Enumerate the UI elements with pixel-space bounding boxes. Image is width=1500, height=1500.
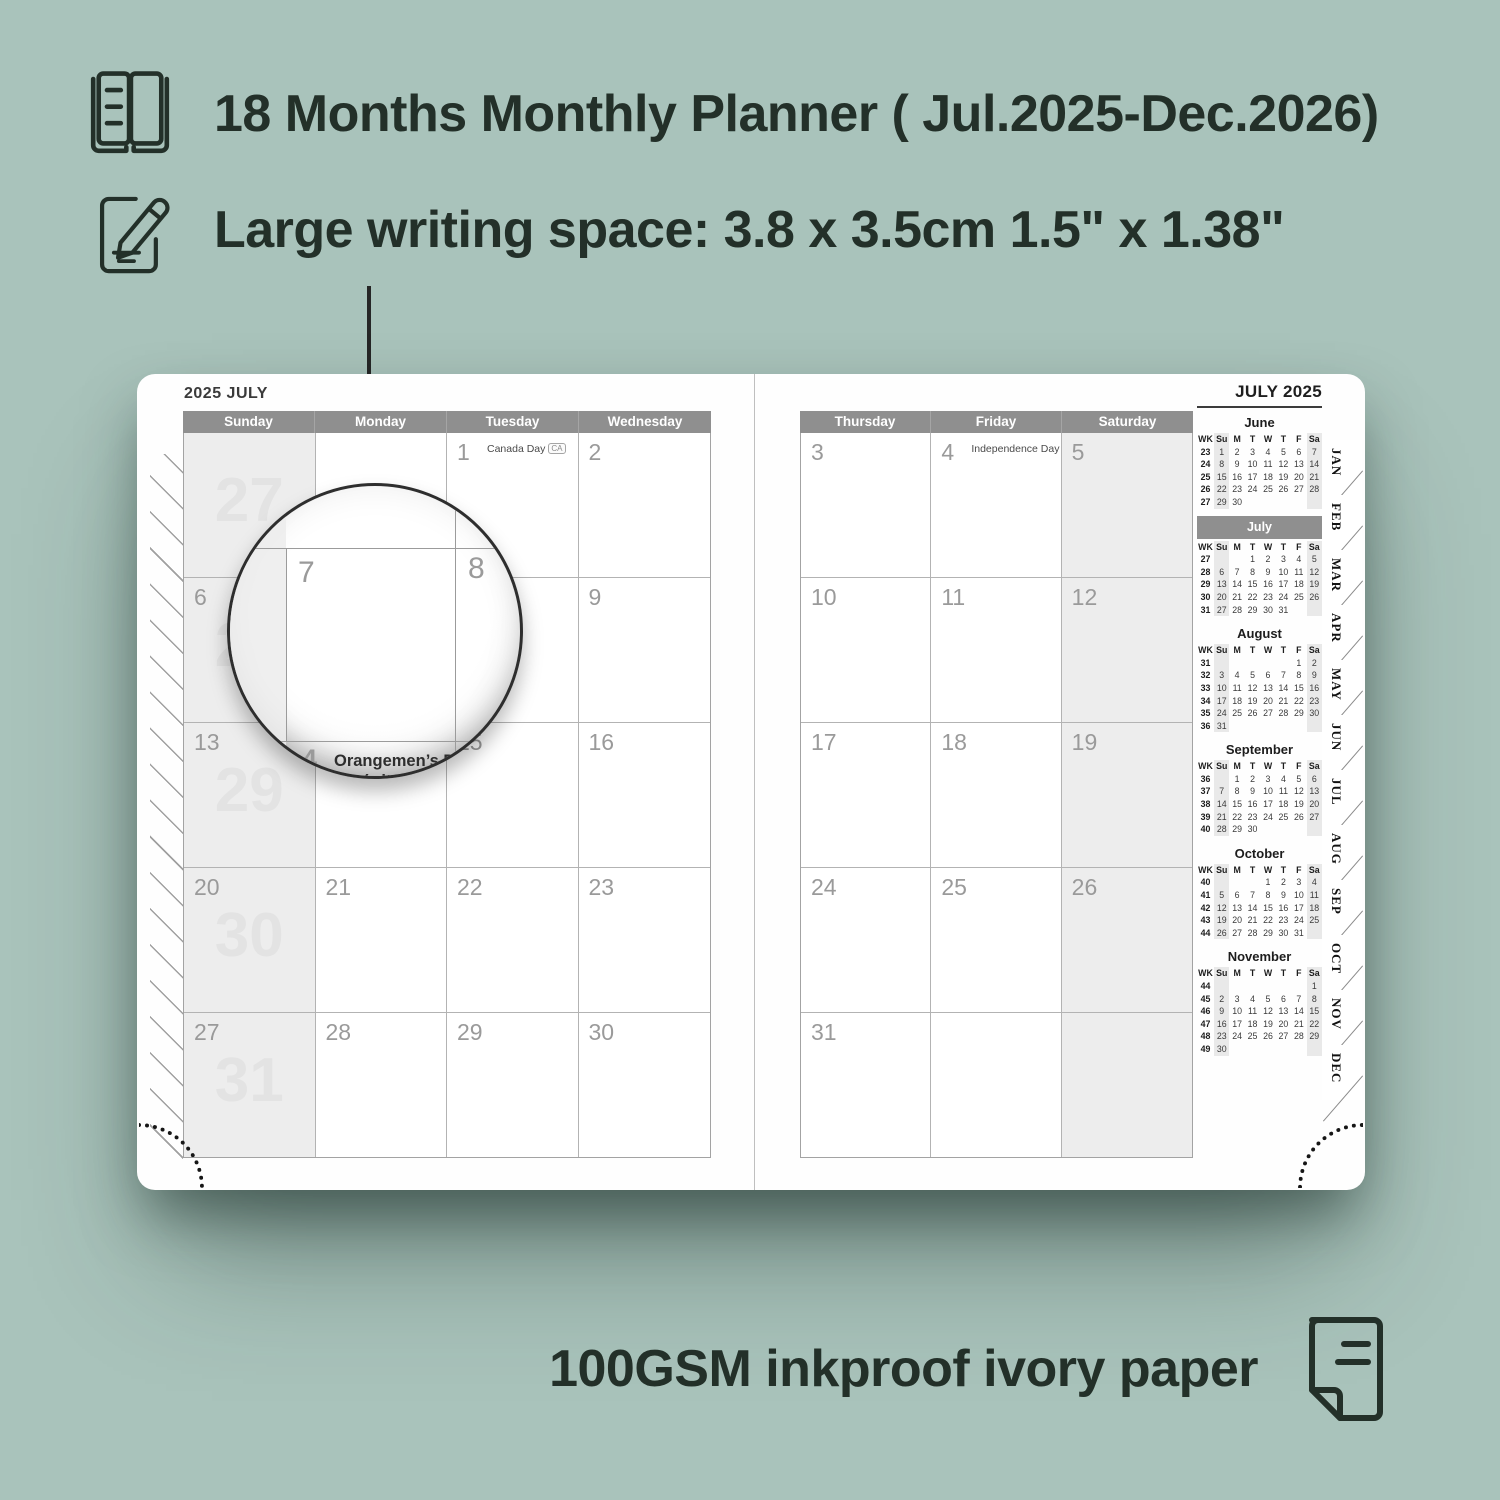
- tab-sep: SEP: [1322, 880, 1362, 935]
- mini-day-cell: 7: [1276, 669, 1291, 682]
- mini-day-cell: 7: [1291, 993, 1306, 1006]
- mini-day-cell: 15: [1214, 471, 1229, 484]
- mini-day-cell: 9: [1276, 889, 1291, 902]
- mini-day-header: Sa: [1307, 760, 1322, 773]
- mini-day-cell: 49: [1197, 1043, 1214, 1056]
- mini-day-header: W: [1260, 760, 1275, 773]
- mini-day-cell: 27: [1214, 604, 1229, 617]
- mini-day-cell: 5: [1307, 553, 1322, 566]
- mini-day-cell: 29: [1260, 927, 1275, 940]
- date-number: 31: [811, 1019, 837, 1046]
- mini-day-cell: 19: [1260, 1018, 1275, 1031]
- mini-day-cell: 26: [1245, 707, 1260, 720]
- mini-day-cell: 15: [1229, 798, 1244, 811]
- mini-day-cell: 39: [1197, 811, 1214, 824]
- mini-day-cell: [1245, 496, 1260, 509]
- tab-label: DEC: [1328, 1053, 1344, 1083]
- mini-day-cell: 2: [1260, 553, 1275, 566]
- mini-day-cell: [1307, 1043, 1322, 1056]
- mini-day-cell: 17: [1260, 798, 1275, 811]
- mini-month-table: WKSuMTWTFSa36123456377891011121338141516…: [1197, 760, 1322, 836]
- mini-day-cell: 44: [1197, 927, 1214, 940]
- mini-day-cell: 2: [1229, 446, 1244, 459]
- mini-day-cell: [1245, 980, 1260, 993]
- mini-month-november: NovemberWKSuMTWTFSa441452345678469101112…: [1197, 946, 1322, 1055]
- mini-day-cell: [1214, 876, 1229, 889]
- mini-day-cell: 25: [1245, 1030, 1260, 1043]
- magnifier-circle: 7 8 4 Orangemen’s Day (wit: [227, 483, 523, 779]
- mini-day-cell: 10: [1291, 889, 1306, 902]
- mini-day-cell: 1: [1245, 553, 1260, 566]
- calendar-cell-23: 23: [579, 868, 711, 1013]
- tab-jan: JAN: [1322, 440, 1362, 495]
- date-number: 21: [326, 874, 352, 901]
- date-number: 11: [941, 584, 965, 611]
- mini-day-cell: 5: [1276, 446, 1291, 459]
- mini-day-cell: 8: [1260, 889, 1275, 902]
- mini-day-cell: 45: [1197, 993, 1214, 1006]
- mini-day-cell: 20: [1291, 471, 1306, 484]
- mini-day-cell: 14: [1214, 798, 1229, 811]
- mini-day-header: WK: [1197, 541, 1214, 554]
- mini-day-cell: 15: [1307, 1005, 1322, 1018]
- mini-day-cell: 40: [1197, 876, 1214, 889]
- mini-day-cell: 27: [1276, 1030, 1291, 1043]
- product-image: 18 Months Monthly Planner ( Jul.2025-Dec…: [0, 0, 1500, 1500]
- mini-day-cell: 24: [1245, 483, 1260, 496]
- mini-day-cell: 19: [1291, 798, 1306, 811]
- date-number: 24: [811, 874, 837, 901]
- mini-day-cell: 31: [1197, 604, 1214, 617]
- date-number: 30: [589, 1019, 615, 1046]
- mini-day-cell: 23: [1245, 811, 1260, 824]
- date-number: 19: [1072, 729, 1098, 756]
- calendar-cell-4: 4Independence DayUS: [931, 433, 1061, 578]
- tab-jun: JUN: [1322, 715, 1362, 770]
- date-number: 5: [1072, 439, 1085, 466]
- feature-text-paper: 100GSM inkproof ivory paper: [549, 1339, 1258, 1399]
- mini-day-cell: 29: [1245, 604, 1260, 617]
- mini-month-july: JulyWKSuMTWTFSa2712345286789101112291314…: [1197, 516, 1322, 617]
- mini-day-cell: [1260, 980, 1275, 993]
- mini-day-header: F: [1291, 433, 1306, 446]
- mini-day-cell: [1291, 720, 1306, 733]
- calendar-cell-20: 3020: [184, 868, 316, 1013]
- date-number: 26: [1072, 874, 1098, 901]
- mini-day-cell: 16: [1307, 682, 1322, 695]
- magnified-sunday-shade: [230, 486, 286, 776]
- mini-day-cell: 20: [1307, 798, 1322, 811]
- mini-day-header: F: [1291, 541, 1306, 554]
- mini-day-cell: [1307, 927, 1322, 940]
- mini-day-cell: 14: [1276, 682, 1291, 695]
- mini-day-header: F: [1291, 644, 1306, 657]
- mini-day-cell: 18: [1307, 902, 1322, 915]
- mini-day-header: M: [1229, 864, 1244, 877]
- mini-day-header: T: [1276, 864, 1291, 877]
- mini-day-cell: 38: [1197, 798, 1214, 811]
- mini-day-cell: 21: [1229, 591, 1244, 604]
- day-header-thursday: Thursday: [800, 411, 931, 433]
- mini-day-cell: [1276, 1043, 1291, 1056]
- mini-day-cell: [1291, 496, 1306, 509]
- mini-month-title: November: [1197, 946, 1322, 967]
- mini-day-cell: 14: [1229, 578, 1244, 591]
- calendar-cell-30: 30: [579, 1013, 711, 1157]
- tab-apr: APR: [1322, 605, 1362, 660]
- holiday-label: Canada DayCA: [487, 443, 566, 455]
- mini-month-table: WKSuMTWTFSa44145234567846910111213141547…: [1197, 967, 1322, 1055]
- calendar-cell-18: 18: [931, 723, 1061, 868]
- mini-month-bar: July: [1197, 516, 1322, 539]
- mini-day-cell: [1276, 823, 1291, 836]
- calendar-cell-9: 9: [579, 578, 711, 723]
- tab-label: APR: [1328, 613, 1344, 643]
- mini-day-cell: 26: [1276, 483, 1291, 496]
- mini-day-header: WK: [1197, 864, 1214, 877]
- mini-day-cell: [1260, 1043, 1275, 1056]
- date-number: 18: [941, 729, 967, 756]
- mini-day-cell: 15: [1260, 902, 1275, 915]
- mini-day-cell: 19: [1245, 695, 1260, 708]
- mini-day-cell: 30: [1260, 604, 1275, 617]
- mini-day-cell: 3: [1276, 553, 1291, 566]
- mini-day-cell: 13: [1260, 682, 1275, 695]
- mini-day-cell: 20: [1229, 914, 1244, 927]
- date-number: 10: [811, 584, 837, 611]
- mini-day-cell: 5: [1214, 889, 1229, 902]
- mini-day-cell: [1307, 823, 1322, 836]
- mini-month-table: WKSuMTWTFSa27123452867891011122913141516…: [1197, 541, 1322, 617]
- mini-day-cell: [1214, 773, 1229, 786]
- feature-text-writing-space: Large writing space: 3.8 x 3.5cm 1.5" x …: [214, 200, 1284, 260]
- mini-day-cell: 25: [1260, 483, 1275, 496]
- mini-day-cell: 11: [1260, 458, 1275, 471]
- mini-day-cell: 25: [1276, 811, 1291, 824]
- mini-day-header: T: [1245, 541, 1260, 554]
- mini-day-cell: 31: [1276, 604, 1291, 617]
- mini-day-cell: 37: [1197, 785, 1214, 798]
- mini-day-cell: 7: [1307, 446, 1322, 459]
- mini-day-cell: 19: [1214, 914, 1229, 927]
- mini-day-cell: 27: [1260, 707, 1275, 720]
- mini-month-title: August: [1197, 623, 1322, 644]
- mini-day-cell: 23: [1214, 1030, 1229, 1043]
- mini-day-cell: 24: [1291, 914, 1306, 927]
- mini-day-header: T: [1276, 433, 1291, 446]
- mini-day-header: Sa: [1307, 433, 1322, 446]
- calendar-cell-26: 26: [1062, 868, 1192, 1013]
- mini-day-cell: 10: [1260, 785, 1275, 798]
- mini-day-header: T: [1245, 644, 1260, 657]
- mini-day-cell: 29: [1197, 578, 1214, 591]
- mini-day-cell: 28: [1214, 823, 1229, 836]
- magnified-grid-line: [455, 486, 456, 776]
- calendar-cell-3: 3: [801, 433, 931, 578]
- mini-day-cell: 14: [1245, 902, 1260, 915]
- mini-day-cell: 18: [1276, 798, 1291, 811]
- mini-day-cell: 21: [1245, 914, 1260, 927]
- mini-day-cell: 23: [1276, 914, 1291, 927]
- mini-day-cell: 11: [1276, 785, 1291, 798]
- mini-day-cell: 46: [1197, 1005, 1214, 1018]
- mini-day-cell: 27: [1197, 496, 1214, 509]
- mini-day-header: W: [1260, 967, 1275, 980]
- date-number: 23: [589, 874, 615, 901]
- day-header-saturday: Saturday: [1062, 411, 1193, 433]
- tab-nov: NOV: [1322, 990, 1362, 1045]
- mini-day-header: F: [1291, 864, 1306, 877]
- mini-day-header: Sa: [1307, 644, 1322, 657]
- mini-day-cell: 2: [1307, 657, 1322, 670]
- mini-day-cell: 6: [1307, 773, 1322, 786]
- mini-day-cell: [1245, 1043, 1260, 1056]
- mini-day-cell: 31: [1214, 720, 1229, 733]
- mini-day-cell: 20: [1276, 1018, 1291, 1031]
- calendar-body: 34Independence DayUS51011121718192425263…: [800, 433, 1193, 1158]
- calendar-cell-19: 19: [1062, 723, 1192, 868]
- mini-day-header: WK: [1197, 644, 1214, 657]
- mini-month-title: October: [1197, 843, 1322, 864]
- mini-day-cell: 9: [1229, 458, 1244, 471]
- mini-day-cell: 21: [1214, 811, 1229, 824]
- month-tab-strip: JANFEBMARAPRMAYJUNJULAUGSEPOCTNOVDEC: [1322, 440, 1364, 1100]
- mini-day-cell: 27: [1197, 553, 1214, 566]
- mini-day-cell: 12: [1276, 458, 1291, 471]
- mini-day-cell: [1214, 980, 1229, 993]
- mini-day-cell: 13: [1214, 578, 1229, 591]
- mini-day-cell: 43: [1197, 914, 1214, 927]
- date-number: 27: [194, 1019, 220, 1046]
- mini-day-cell: 11: [1245, 1005, 1260, 1018]
- mini-day-header: T: [1245, 967, 1260, 980]
- date-number: 29: [457, 1019, 483, 1046]
- paper-sheet-icon: [1298, 1310, 1392, 1428]
- mini-month-august: AugustWKSuMTWTFSa31123234567893310111213…: [1197, 623, 1322, 732]
- mini-day-cell: 16: [1214, 1018, 1229, 1031]
- side-panel-title: JULY 2025: [1197, 382, 1322, 402]
- feature-row-months: 18 Months Monthly Planner ( Jul.2025-Dec…: [84, 66, 1379, 162]
- tab-feb: FEB: [1322, 495, 1362, 550]
- mini-day-cell: 29: [1291, 707, 1306, 720]
- mini-day-cell: 17: [1276, 578, 1291, 591]
- mini-day-header: W: [1260, 644, 1275, 657]
- tab-dec: DEC: [1322, 1045, 1362, 1100]
- mini-day-cell: 10: [1276, 566, 1291, 579]
- date-number: 1: [457, 439, 470, 466]
- mini-day-cell: 9: [1307, 669, 1322, 682]
- mini-day-cell: 8: [1214, 458, 1229, 471]
- date-number: 16: [589, 729, 615, 756]
- tab-label: OCT: [1328, 943, 1344, 974]
- mini-day-cell: 17: [1245, 471, 1260, 484]
- mini-month-september: SeptemberWKSuMTWTFSa36123456377891011121…: [1197, 739, 1322, 836]
- mini-month-table: WKSuMTWTFSa31123234567893310111213141516…: [1197, 644, 1322, 732]
- mini-day-cell: 30: [1197, 591, 1214, 604]
- tab-oct: OCT: [1322, 935, 1362, 990]
- mini-day-cell: 24: [1197, 458, 1214, 471]
- day-header-sunday: Sunday: [183, 411, 315, 433]
- mini-day-cell: 3: [1245, 446, 1260, 459]
- mini-day-cell: 13: [1307, 785, 1322, 798]
- mini-day-cell: 29: [1307, 1030, 1322, 1043]
- mini-day-cell: 9: [1245, 785, 1260, 798]
- date-number: 9: [589, 584, 602, 611]
- mini-day-cell: [1245, 657, 1260, 670]
- mini-day-header: M: [1229, 967, 1244, 980]
- date-number: 25: [941, 874, 967, 901]
- mini-day-cell: 15: [1245, 578, 1260, 591]
- mini-day-header: W: [1260, 541, 1275, 554]
- tab-mar: MAR: [1322, 550, 1362, 605]
- mini-day-cell: 28: [1291, 1030, 1306, 1043]
- magnified-grid-line: [230, 741, 520, 742]
- mini-day-header: M: [1229, 541, 1244, 554]
- mini-day-cell: 25: [1307, 914, 1322, 927]
- mini-day-cell: 4: [1260, 446, 1275, 459]
- day-header-tuesday: Tuesday: [447, 411, 579, 433]
- mini-day-cell: 10: [1245, 458, 1260, 471]
- mini-day-cell: 33: [1197, 682, 1214, 695]
- mini-day-cell: 21: [1307, 471, 1322, 484]
- mini-month-title: September: [1197, 739, 1322, 760]
- mini-day-cell: 31: [1291, 927, 1306, 940]
- mini-day-header: Sa: [1307, 864, 1322, 877]
- mini-day-cell: 27: [1291, 483, 1306, 496]
- mini-day-cell: 3: [1291, 876, 1306, 889]
- calendar-cell-25: 25: [931, 868, 1061, 1013]
- calendar-cell: [1062, 1013, 1192, 1157]
- tab-label: JUN: [1328, 723, 1344, 751]
- mini-day-cell: 23: [1260, 591, 1275, 604]
- mini-day-cell: 40: [1197, 823, 1214, 836]
- mini-day-cell: 30: [1214, 1043, 1229, 1056]
- mini-day-cell: 28: [1229, 604, 1244, 617]
- mini-day-header: Su: [1214, 433, 1229, 446]
- mini-day-header: T: [1245, 760, 1260, 773]
- mini-day-cell: 22: [1245, 591, 1260, 604]
- mini-day-cell: 3: [1260, 773, 1275, 786]
- tab-label: FEB: [1328, 503, 1344, 531]
- mini-day-cell: 6: [1276, 993, 1291, 1006]
- magnified-event-line2: (wit: [363, 772, 391, 779]
- calendar-cell-29: 29: [447, 1013, 579, 1157]
- mini-day-cell: 23: [1197, 446, 1214, 459]
- mini-day-header: Su: [1214, 541, 1229, 554]
- tab-label: JAN: [1328, 448, 1344, 476]
- mini-day-header: T: [1245, 864, 1260, 877]
- mini-day-cell: 28: [1276, 707, 1291, 720]
- mini-day-cell: [1229, 876, 1244, 889]
- mini-day-cell: [1291, 980, 1306, 993]
- mini-day-cell: [1245, 876, 1260, 889]
- mini-day-cell: 3: [1214, 669, 1229, 682]
- mini-day-cell: [1229, 980, 1244, 993]
- mini-day-header: F: [1291, 967, 1306, 980]
- mini-day-cell: 26: [1214, 927, 1229, 940]
- date-number: 3: [811, 439, 824, 466]
- mini-day-cell: 19: [1276, 471, 1291, 484]
- mini-day-cell: [1291, 1043, 1306, 1056]
- week-number-watermark: 31: [184, 1045, 315, 1116]
- calendar-cell: [931, 1013, 1061, 1157]
- calendar-cell-28: 28: [316, 1013, 448, 1157]
- date-number: 4: [941, 439, 954, 466]
- mini-day-cell: 2: [1214, 993, 1229, 1006]
- mini-day-header: W: [1260, 864, 1275, 877]
- magnified-grid-line: [286, 548, 287, 741]
- calendar-cell-5: 5: [1062, 433, 1192, 578]
- mini-day-cell: 11: [1307, 889, 1322, 902]
- date-number: 22: [457, 874, 483, 901]
- tab-label: JUL: [1328, 778, 1344, 806]
- mini-day-cell: 1: [1307, 980, 1322, 993]
- mini-day-cell: 35: [1197, 707, 1214, 720]
- mini-day-cell: [1260, 496, 1275, 509]
- mini-day-cell: [1214, 553, 1229, 566]
- mini-day-header: W: [1260, 433, 1275, 446]
- calendar-grid-right: ThursdayFridaySaturday34Independence Day…: [800, 411, 1193, 1158]
- mini-day-cell: 28: [1245, 927, 1260, 940]
- mini-day-cell: 12: [1260, 1005, 1275, 1018]
- mini-day-cell: [1229, 1043, 1244, 1056]
- mini-day-header: Sa: [1307, 967, 1322, 980]
- mini-calendar-panel: JULY 2025 JuneWKSuMTWTFSa231234567248910…: [1197, 382, 1322, 1063]
- side-panel-rule: [1197, 406, 1322, 408]
- mini-day-header: Su: [1214, 967, 1229, 980]
- date-number: 17: [811, 729, 837, 756]
- mini-day-cell: 17: [1291, 902, 1306, 915]
- tab-aug: AUG: [1322, 825, 1362, 880]
- mini-day-cell: 7: [1245, 889, 1260, 902]
- calendar-cell-24: 24: [801, 868, 931, 1013]
- mini-day-cell: 2: [1245, 773, 1260, 786]
- mini-day-cell: 22: [1214, 483, 1229, 496]
- mini-day-cell: 11: [1291, 566, 1306, 579]
- mini-day-cell: 7: [1214, 785, 1229, 798]
- mini-day-cell: 2: [1276, 876, 1291, 889]
- date-number: 6: [194, 584, 207, 611]
- dotted-arc-bottom-left: [139, 1113, 214, 1188]
- mini-day-cell: 10: [1214, 682, 1229, 695]
- mini-day-cell: [1307, 496, 1322, 509]
- left-page-title: 2025 JULY: [184, 385, 268, 403]
- mini-day-cell: 18: [1245, 1018, 1260, 1031]
- mini-day-header: WK: [1197, 433, 1214, 446]
- mini-day-cell: 3: [1229, 993, 1244, 1006]
- mini-day-cell: 6: [1291, 446, 1306, 459]
- mini-day-cell: 34: [1197, 695, 1214, 708]
- mini-day-cell: 27: [1307, 811, 1322, 824]
- mini-day-cell: 4: [1307, 876, 1322, 889]
- mini-day-header: T: [1245, 433, 1260, 446]
- mini-day-cell: 28: [1197, 566, 1214, 579]
- mini-day-cell: [1291, 823, 1306, 836]
- tab-label: NOV: [1328, 998, 1344, 1030]
- calendar-cell-21: 21: [316, 868, 448, 1013]
- calendar-cell-22: 22: [447, 868, 579, 1013]
- mini-day-cell: 13: [1291, 458, 1306, 471]
- mini-day-cell: 20: [1214, 591, 1229, 604]
- mini-month-october: OctoberWKSuMTWTFSa4012344156789101142121…: [1197, 843, 1322, 940]
- mini-day-cell: 9: [1214, 1005, 1229, 1018]
- mini-day-cell: [1260, 657, 1275, 670]
- mini-day-cell: [1276, 496, 1291, 509]
- mini-day-cell: 47: [1197, 1018, 1214, 1031]
- calendar-cell-2: 2: [579, 433, 711, 578]
- day-header-monday: Monday: [315, 411, 447, 433]
- mini-day-cell: 1: [1291, 657, 1306, 670]
